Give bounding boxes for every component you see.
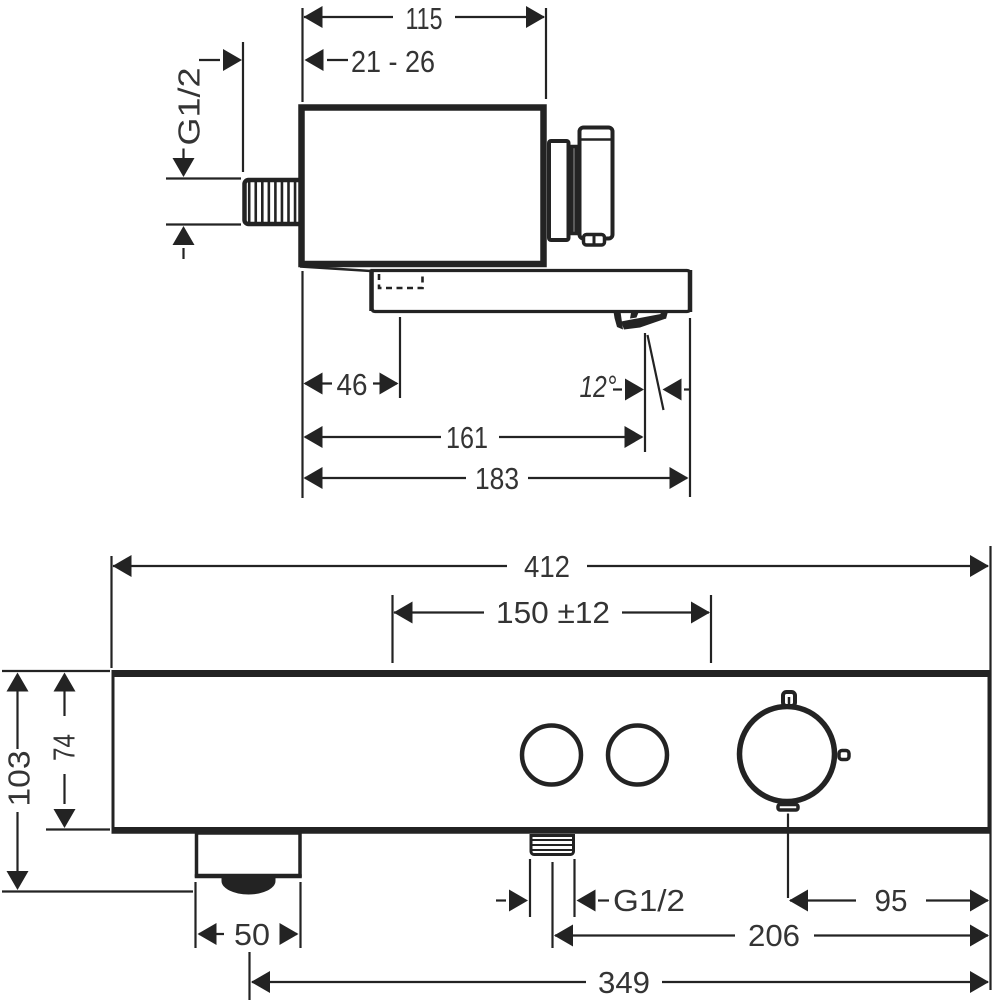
svg-text:349: 349 <box>598 966 650 1000</box>
svg-text:21 - 26: 21 - 26 <box>351 45 435 79</box>
svg-text:74: 74 <box>48 734 82 761</box>
svg-text:95: 95 <box>875 884 908 918</box>
svg-text:12°: 12° <box>580 370 617 404</box>
svg-text:50: 50 <box>234 918 270 952</box>
svg-text:103: 103 <box>3 751 37 807</box>
svg-text:G1/2: G1/2 <box>173 68 207 146</box>
svg-text:115: 115 <box>406 2 443 36</box>
svg-text:412: 412 <box>524 550 570 584</box>
svg-text:161: 161 <box>446 421 488 455</box>
svg-text:G1/2: G1/2 <box>613 884 685 918</box>
svg-text:183: 183 <box>475 462 519 496</box>
svg-text:46: 46 <box>337 368 368 402</box>
svg-text:150 ±12: 150 ±12 <box>496 596 610 630</box>
svg-text:206: 206 <box>748 919 800 953</box>
